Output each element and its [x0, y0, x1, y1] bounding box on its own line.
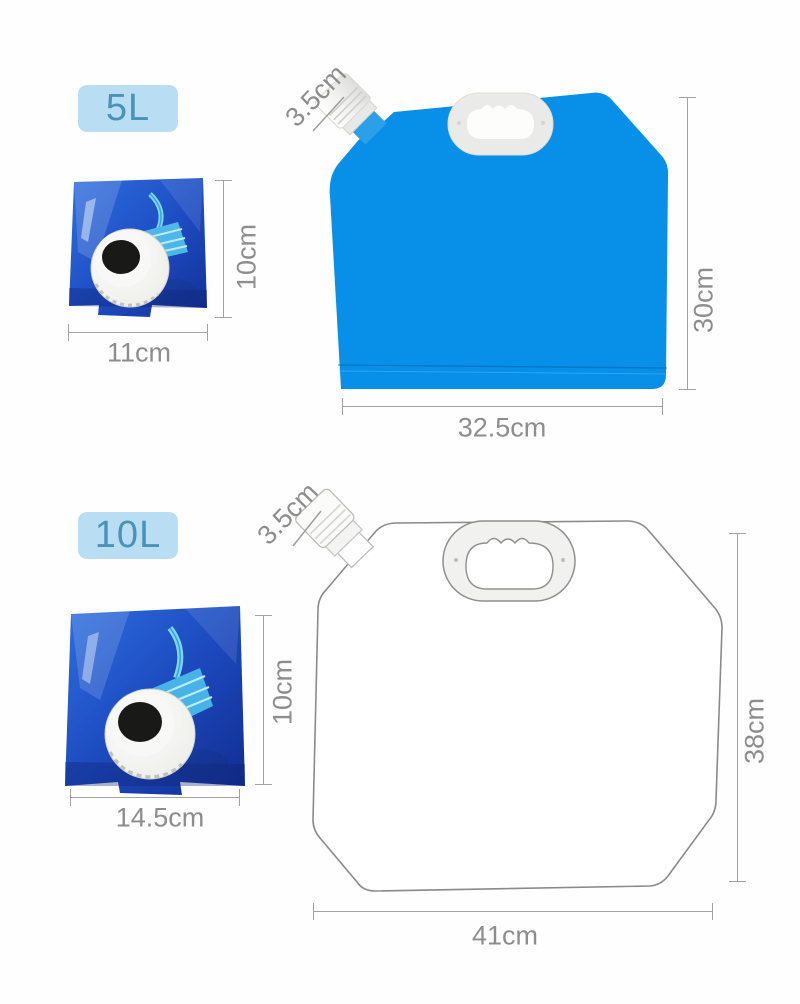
dim-label-folded-width-10l: 14.5cm [116, 805, 205, 832]
folded-bag-image-10l [55, 592, 275, 807]
dim-line-folded-width-10l [70, 797, 240, 798]
section-10l: 10L [0, 0, 800, 1004]
dim-label-bag-width-10l: 41cm [472, 923, 538, 950]
carry-handle-10l [443, 521, 575, 601]
dim-label-bag-height-10l: 38cm [742, 698, 769, 764]
product-size-diagram: 5L [0, 0, 800, 1004]
water-bag-graphic-10l [260, 470, 750, 910]
dim-line-bag-width-10l [313, 911, 713, 912]
size-badge-10l: 10L [78, 512, 178, 559]
dim-line-bag-height-10l [737, 533, 738, 882]
